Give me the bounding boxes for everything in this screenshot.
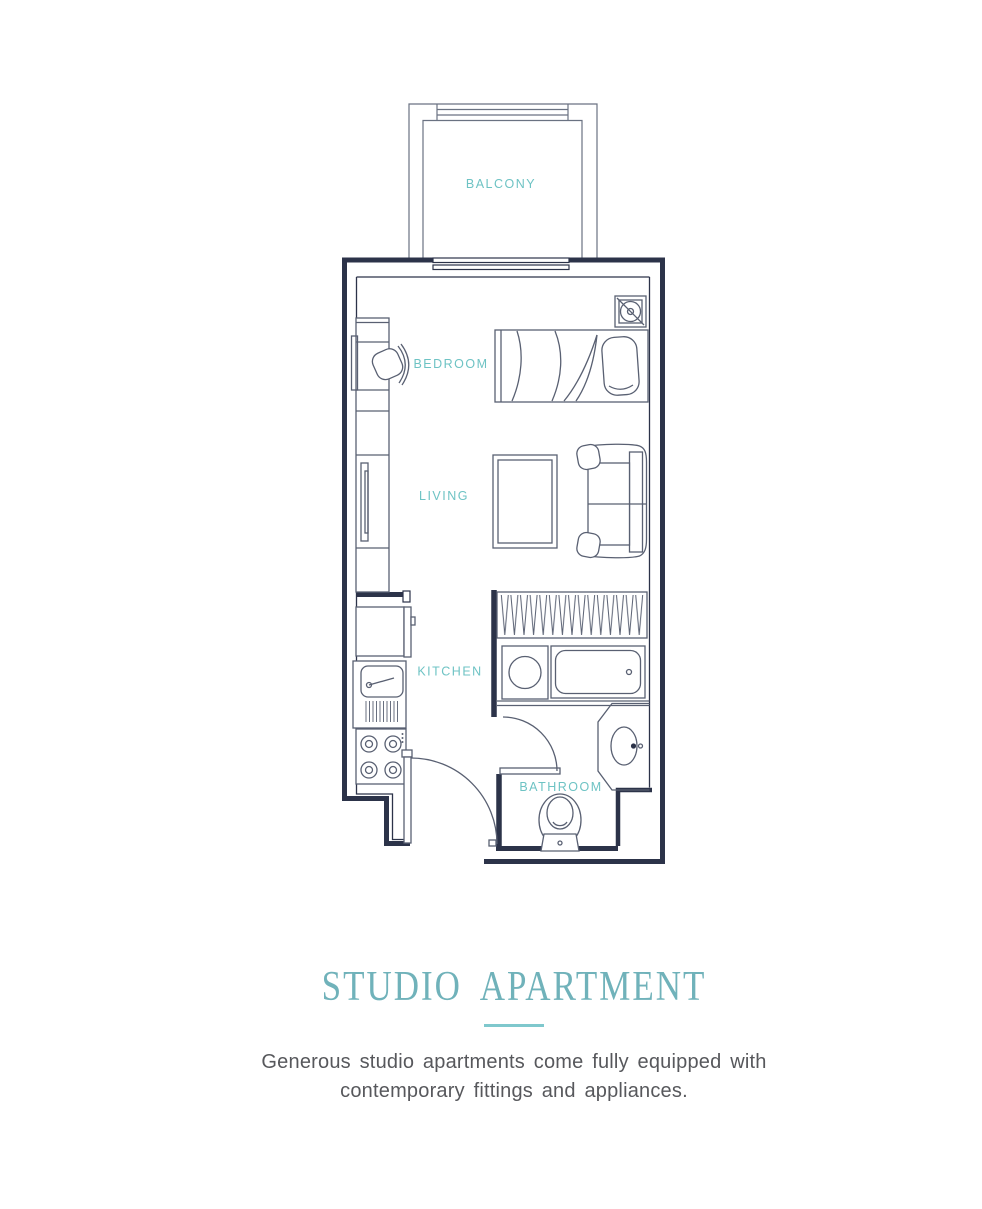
divider — [484, 1024, 544, 1027]
description-line-2: contemporary fittings and appliances. — [23, 1077, 982, 1106]
fridge — [356, 607, 415, 657]
exhaust-fan-symbol — [615, 296, 646, 327]
wardrobe — [497, 592, 647, 638]
room-label-living: LIVING — [419, 489, 469, 503]
room-label-kitchen: KITCHEN — [417, 665, 482, 679]
wall-bathroom-step — [618, 790, 652, 846]
description: Generous studio apartments come fully eq… — [23, 1048, 982, 1106]
entry-door — [402, 750, 497, 846]
pillow — [601, 336, 640, 396]
description-line-1: Generous studio apartments come fully eq… — [23, 1048, 982, 1077]
room-label-bathroom: BATHROOM — [519, 780, 602, 794]
page-title: STUDIO APARTMENT — [23, 963, 982, 1011]
kitchen-sink — [353, 661, 406, 728]
washing-machine — [502, 646, 548, 699]
bathtub — [551, 646, 645, 698]
studio-apartment-page: BALCONY BEDROOM LIVING KITCHEN BATHROOM … — [0, 0, 982, 1209]
vanity-sink — [598, 704, 650, 791]
room-label-balcony: BALCONY — [466, 177, 536, 191]
toilet — [539, 794, 581, 851]
stove — [356, 729, 406, 784]
sofa — [576, 443, 647, 558]
floor-plan: BALCONY BEDROOM LIVING KITCHEN BATHROOM — [0, 0, 982, 920]
coffee-table — [493, 455, 557, 548]
bed — [495, 330, 648, 402]
hanger-hatch — [500, 595, 644, 635]
room-label-bedroom: BEDROOM — [413, 357, 488, 371]
balcony-sliding-door — [433, 258, 569, 270]
bathroom-door — [500, 717, 560, 774]
faucet-dot — [631, 743, 636, 748]
